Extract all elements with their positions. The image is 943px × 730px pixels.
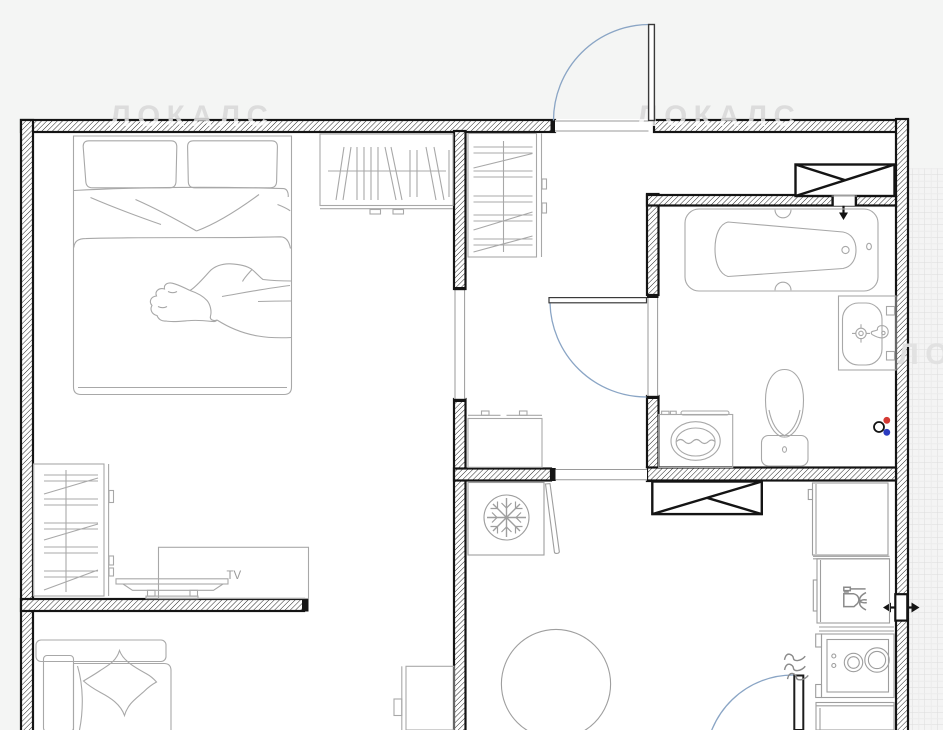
svg-text:ЛОКАЛС: ЛОКАЛС <box>898 338 943 371</box>
svg-text:TV: TV <box>227 570 242 582</box>
